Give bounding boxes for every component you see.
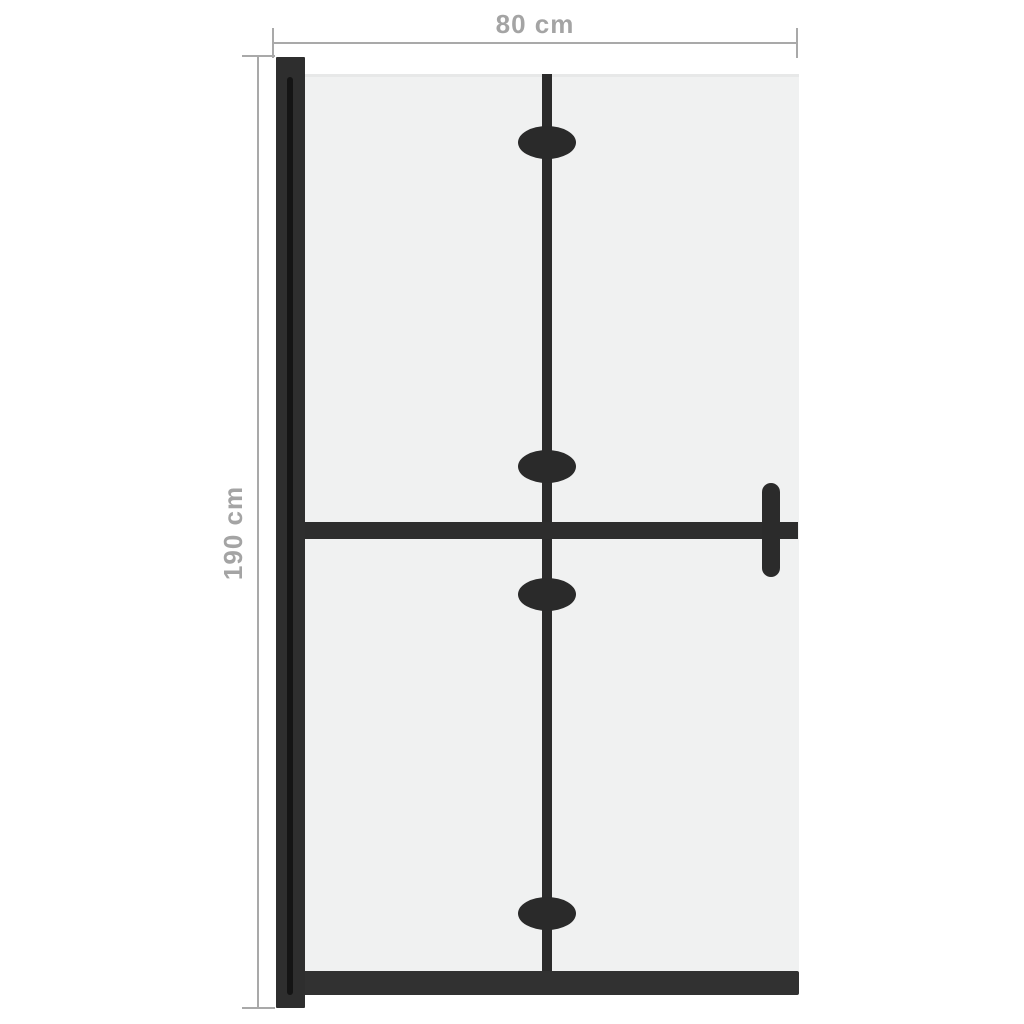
height-dimension-tick-bottom xyxy=(242,1007,275,1009)
height-dimension-label: 190 cm xyxy=(217,458,249,608)
hinge-top xyxy=(518,126,576,159)
hinge-bottom xyxy=(518,897,576,930)
product-dimension-diagram: 80 cm 190 cm xyxy=(0,0,1024,1024)
stabilizer-crossbar xyxy=(305,522,798,539)
bottom-frame-rail xyxy=(300,971,799,995)
wall-support-bracket xyxy=(762,483,780,577)
width-dimension-label: 80 cm xyxy=(273,9,797,39)
wall-mounting-profile xyxy=(276,57,305,1008)
hinge-lower-middle xyxy=(518,578,576,611)
width-dimension-tick-right xyxy=(796,28,798,58)
width-dimension-line xyxy=(273,42,797,44)
height-dimension-line xyxy=(257,56,259,1009)
profile-seam-line xyxy=(287,77,293,995)
hinge-upper-middle xyxy=(518,450,576,483)
height-dimension-tick-top xyxy=(242,55,275,57)
width-dimension-tick-left xyxy=(272,28,274,58)
